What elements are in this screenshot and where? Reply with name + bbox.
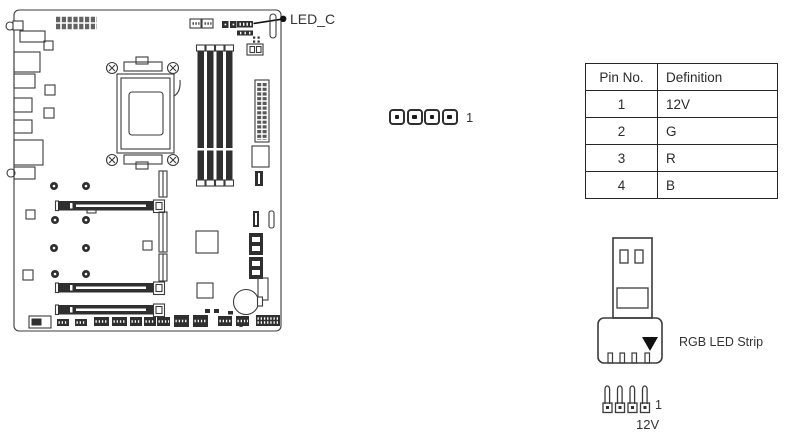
col-header-definition: Definition xyxy=(658,64,778,91)
pin-no-cell: 1 xyxy=(586,91,658,118)
pin-no-cell: 3 xyxy=(586,145,658,172)
rgb-led-strip-label: RGB LED Strip xyxy=(679,335,763,349)
pcie-slots xyxy=(56,200,165,317)
strip-plug-body xyxy=(613,238,652,318)
definition-cell: R xyxy=(658,145,778,172)
callout-dot xyxy=(280,16,286,22)
callout-line xyxy=(254,19,282,23)
table-row: 2 G xyxy=(586,118,778,145)
table-row: 1 12V xyxy=(586,91,778,118)
led-c-pin-header-graphic: 1 xyxy=(389,109,473,125)
pin-dot xyxy=(412,115,417,120)
pin-box xyxy=(424,109,440,125)
definition-cell: G xyxy=(658,118,778,145)
pin-dot xyxy=(447,115,452,120)
pin-no-cell: 2 xyxy=(586,118,658,145)
led-c-header-location xyxy=(237,21,253,28)
rear-io-ports xyxy=(7,41,55,179)
table-header-row: Pin No. Definition xyxy=(586,64,778,91)
pin-box xyxy=(407,109,423,125)
fan-headers xyxy=(190,19,213,28)
top-pin-header-block xyxy=(56,20,97,27)
table-row: 3 R xyxy=(586,145,778,172)
standoffs xyxy=(50,182,90,278)
pin-dot xyxy=(395,115,400,120)
definition-cell: B xyxy=(658,172,778,199)
pin-dot xyxy=(430,115,435,120)
strip-12v-label: 12V xyxy=(636,417,659,432)
ram-slots xyxy=(197,45,234,186)
pin1-triangle-icon xyxy=(642,337,658,351)
pin-box xyxy=(442,109,458,125)
led-c-callout-label: LED_C xyxy=(290,11,335,27)
col-header-pin-no: Pin No. xyxy=(586,64,658,91)
chipset xyxy=(196,231,218,253)
m2-slots xyxy=(159,171,167,281)
board-pin-header-graphic xyxy=(603,386,650,413)
table-row: 4 B xyxy=(586,172,778,199)
manual-figure-led-c: LED_C 1 Pin No. Definition 1 12V 2 G 3 xyxy=(0,0,797,443)
strip-pin1-label: 1 xyxy=(655,398,662,412)
pin-no-cell: 4 xyxy=(586,172,658,199)
pin-definition-table: Pin No. Definition 1 12V 2 G 3 R 4 B xyxy=(585,63,778,199)
rgb-led-strip-connector-graphic xyxy=(588,232,693,438)
pin1-label: 1 xyxy=(466,110,473,125)
sata-connectors xyxy=(249,211,274,300)
atx-power-connector xyxy=(255,80,269,142)
pin-box xyxy=(389,109,405,125)
definition-cell: 12V xyxy=(658,91,778,118)
motherboard-diagram xyxy=(0,0,350,340)
cpu-socket xyxy=(107,57,181,169)
